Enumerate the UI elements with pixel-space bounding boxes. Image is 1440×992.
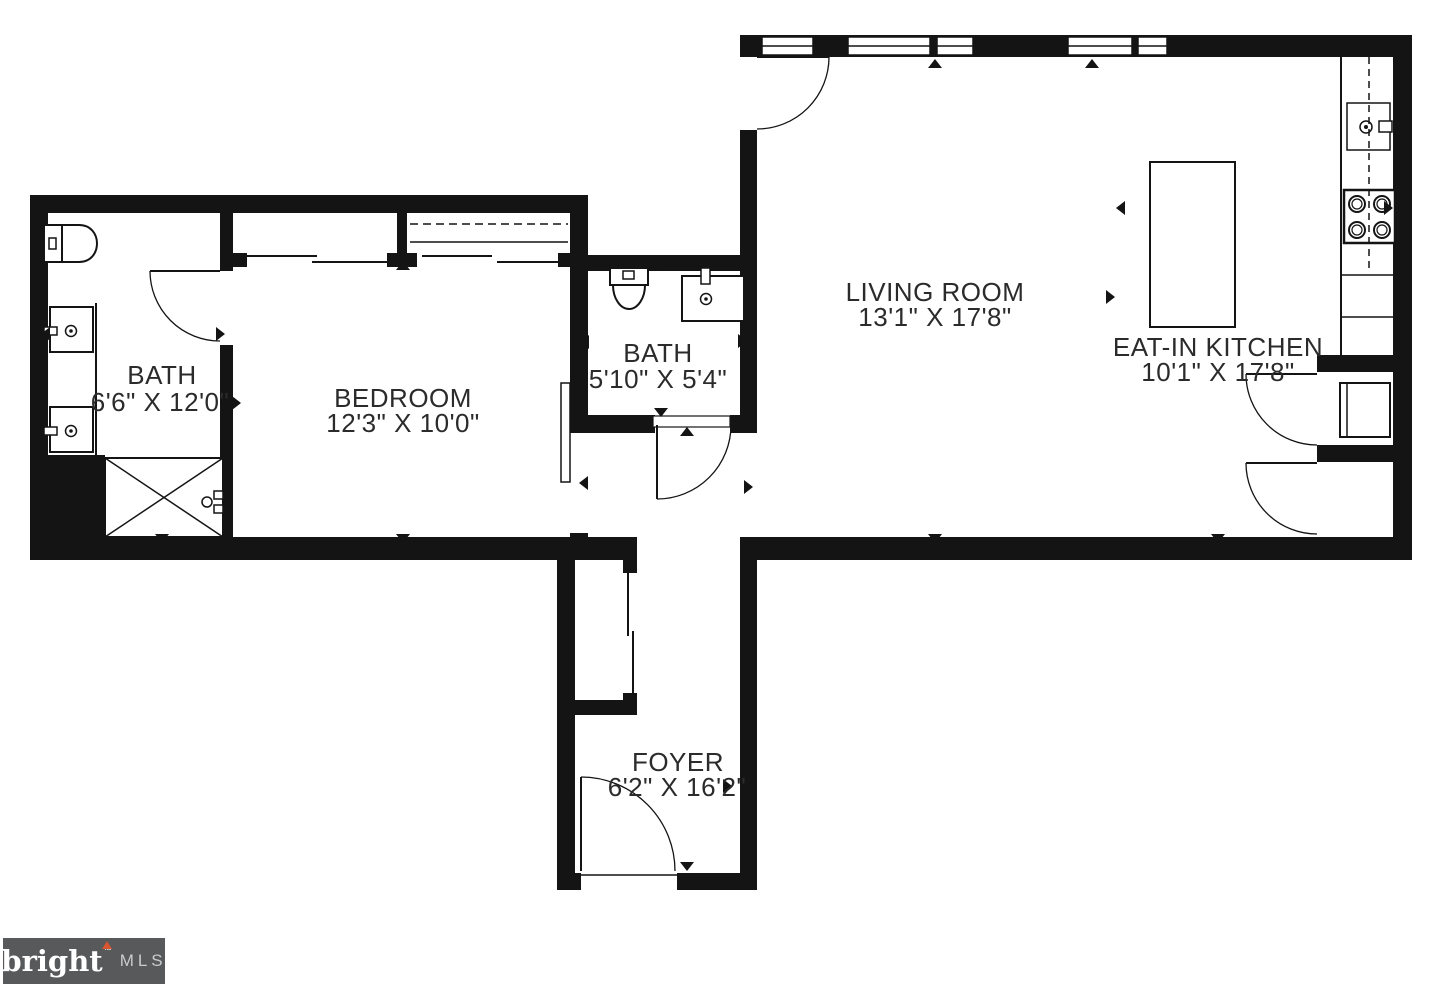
wall-segment [677, 873, 757, 890]
wall-segment [740, 537, 757, 890]
wall-segment [623, 552, 637, 573]
room-dims-bath-small: 5'10" X 5'4" [589, 364, 727, 394]
logo-suffix-text: MLS [120, 951, 167, 971]
window [1138, 37, 1167, 55]
brightmls-logo: bright™ MLS [3, 938, 165, 984]
wall-segment [572, 255, 757, 271]
floor-plan: BATH 6'6" X 12'0" BEDROOM 12'3" X 10'0" … [0, 0, 1440, 992]
wall-segment [558, 253, 572, 267]
vanity-sink-icon [44, 307, 93, 352]
wall-segment [570, 195, 588, 433]
logo-triangle-icon [102, 941, 112, 949]
room-dims-bedroom: 12'3" X 10'0" [326, 408, 479, 438]
window [937, 37, 973, 55]
room-dims-living-room: 13'1" X 17'8" [858, 302, 1011, 332]
kitchen-island [1150, 162, 1235, 327]
room-dims-foyer: 6'2" X 16'2" [608, 772, 746, 802]
wall-segment [30, 537, 637, 560]
wall-segment [557, 545, 575, 890]
logo-brand-text: bright™ [1, 947, 111, 976]
logo-brand-word: bright [1, 944, 102, 978]
wall-segment [1393, 35, 1412, 560]
shower-icon [105, 458, 223, 537]
toilet-icon [44, 225, 97, 262]
wall-segment [30, 195, 588, 213]
window [1068, 37, 1132, 55]
wall-segment [572, 415, 655, 433]
wall-segment [1317, 445, 1395, 462]
room-label-bath-main: BATH [127, 360, 196, 390]
wall-segment [557, 873, 581, 890]
door-bedroom-sliding [561, 383, 570, 482]
room-dims-bath-main: 6'6" X 12'0" [91, 387, 229, 417]
wall-mass [30, 455, 105, 537]
room-dims-eat-in-kitchen: 10'1" X 17'8" [1141, 357, 1294, 387]
floor-plan-page: BATH 6'6" X 12'0" BEDROOM 12'3" X 10'0" … [0, 0, 1440, 992]
window [848, 37, 930, 55]
window [762, 37, 813, 55]
washer-icon [1340, 383, 1390, 437]
wall-segment [220, 213, 233, 271]
wall-segment [557, 700, 637, 715]
vanity-sink-icon [44, 407, 93, 452]
wall-segment [232, 253, 247, 267]
wall-segment [397, 213, 407, 257]
wall-segment [1317, 355, 1395, 372]
sink-icon [682, 268, 744, 321]
wall-segment [740, 537, 1412, 560]
